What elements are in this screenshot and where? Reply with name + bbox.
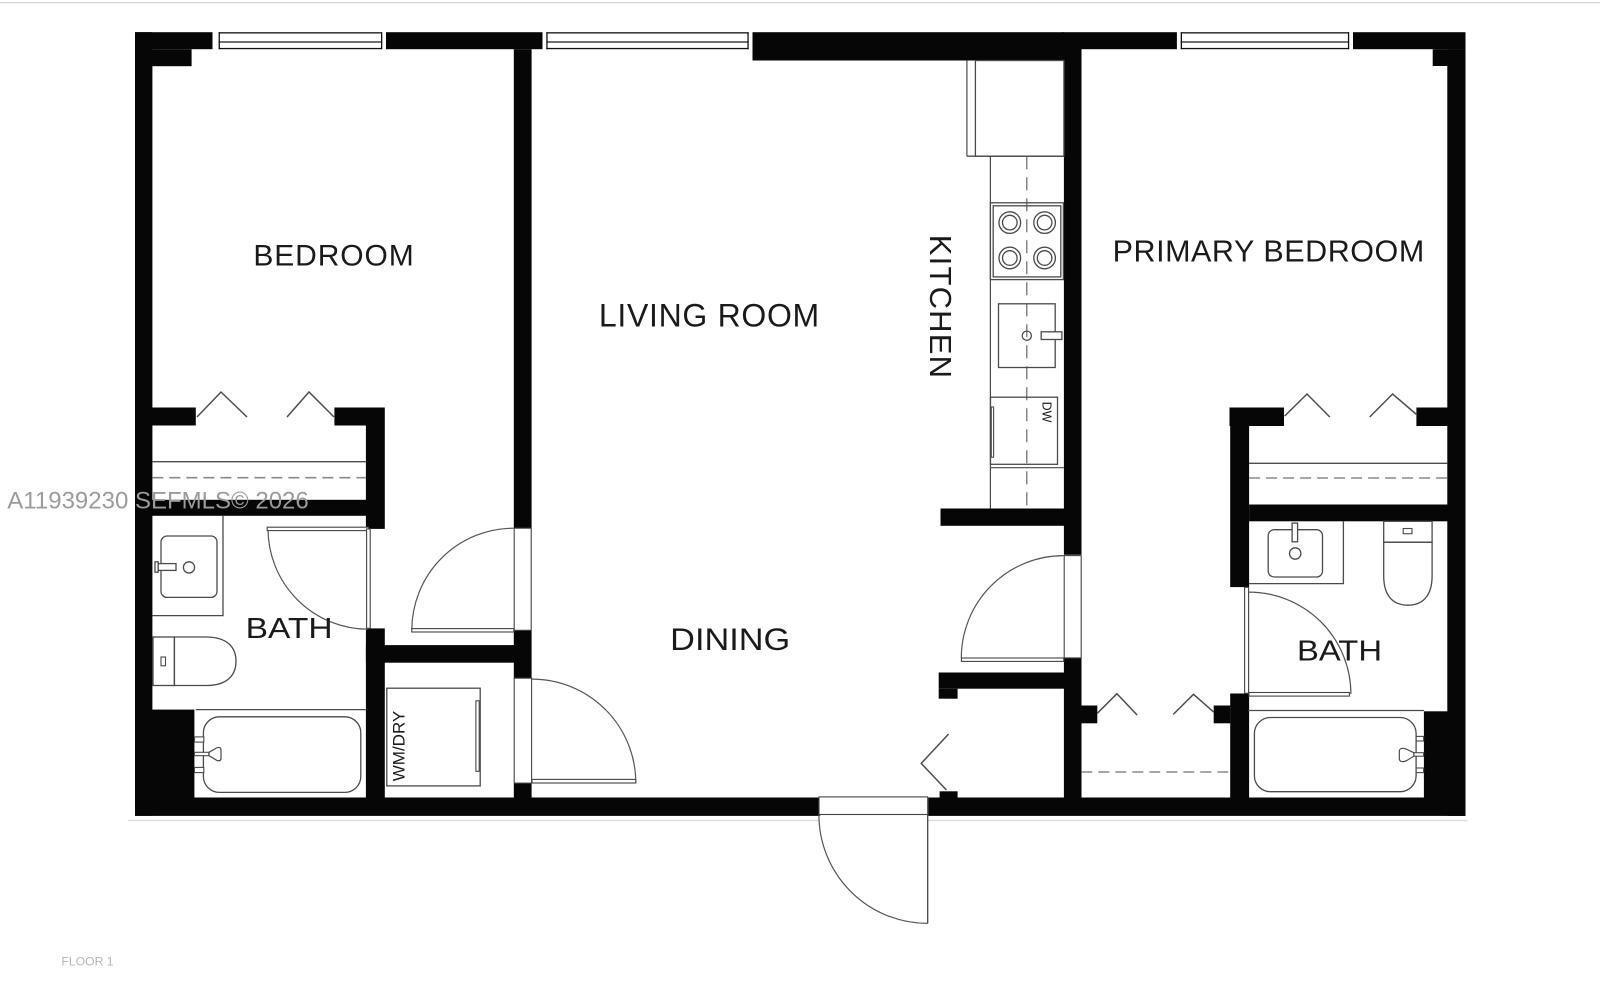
- svg-text:FLOOR 1: FLOOR 1: [61, 955, 113, 969]
- svg-text:BATH: BATH: [1297, 636, 1382, 668]
- svg-text:LIVING ROOM: LIVING ROOM: [599, 298, 820, 334]
- svg-text:PRIMARY BEDROOM: PRIMARY BEDROOM: [1113, 235, 1425, 269]
- svg-text:A11939230 SEFMLS© 2026: A11939230 SEFMLS© 2026: [7, 488, 308, 515]
- svg-text:KITCHEN: KITCHEN: [923, 235, 958, 379]
- svg-text:DW: DW: [1040, 402, 1054, 423]
- svg-text:BATH: BATH: [246, 613, 333, 645]
- svg-text:WM/DRY: WM/DRY: [390, 711, 409, 782]
- svg-text:DINING: DINING: [670, 621, 790, 657]
- svg-text:BEDROOM: BEDROOM: [253, 240, 414, 273]
